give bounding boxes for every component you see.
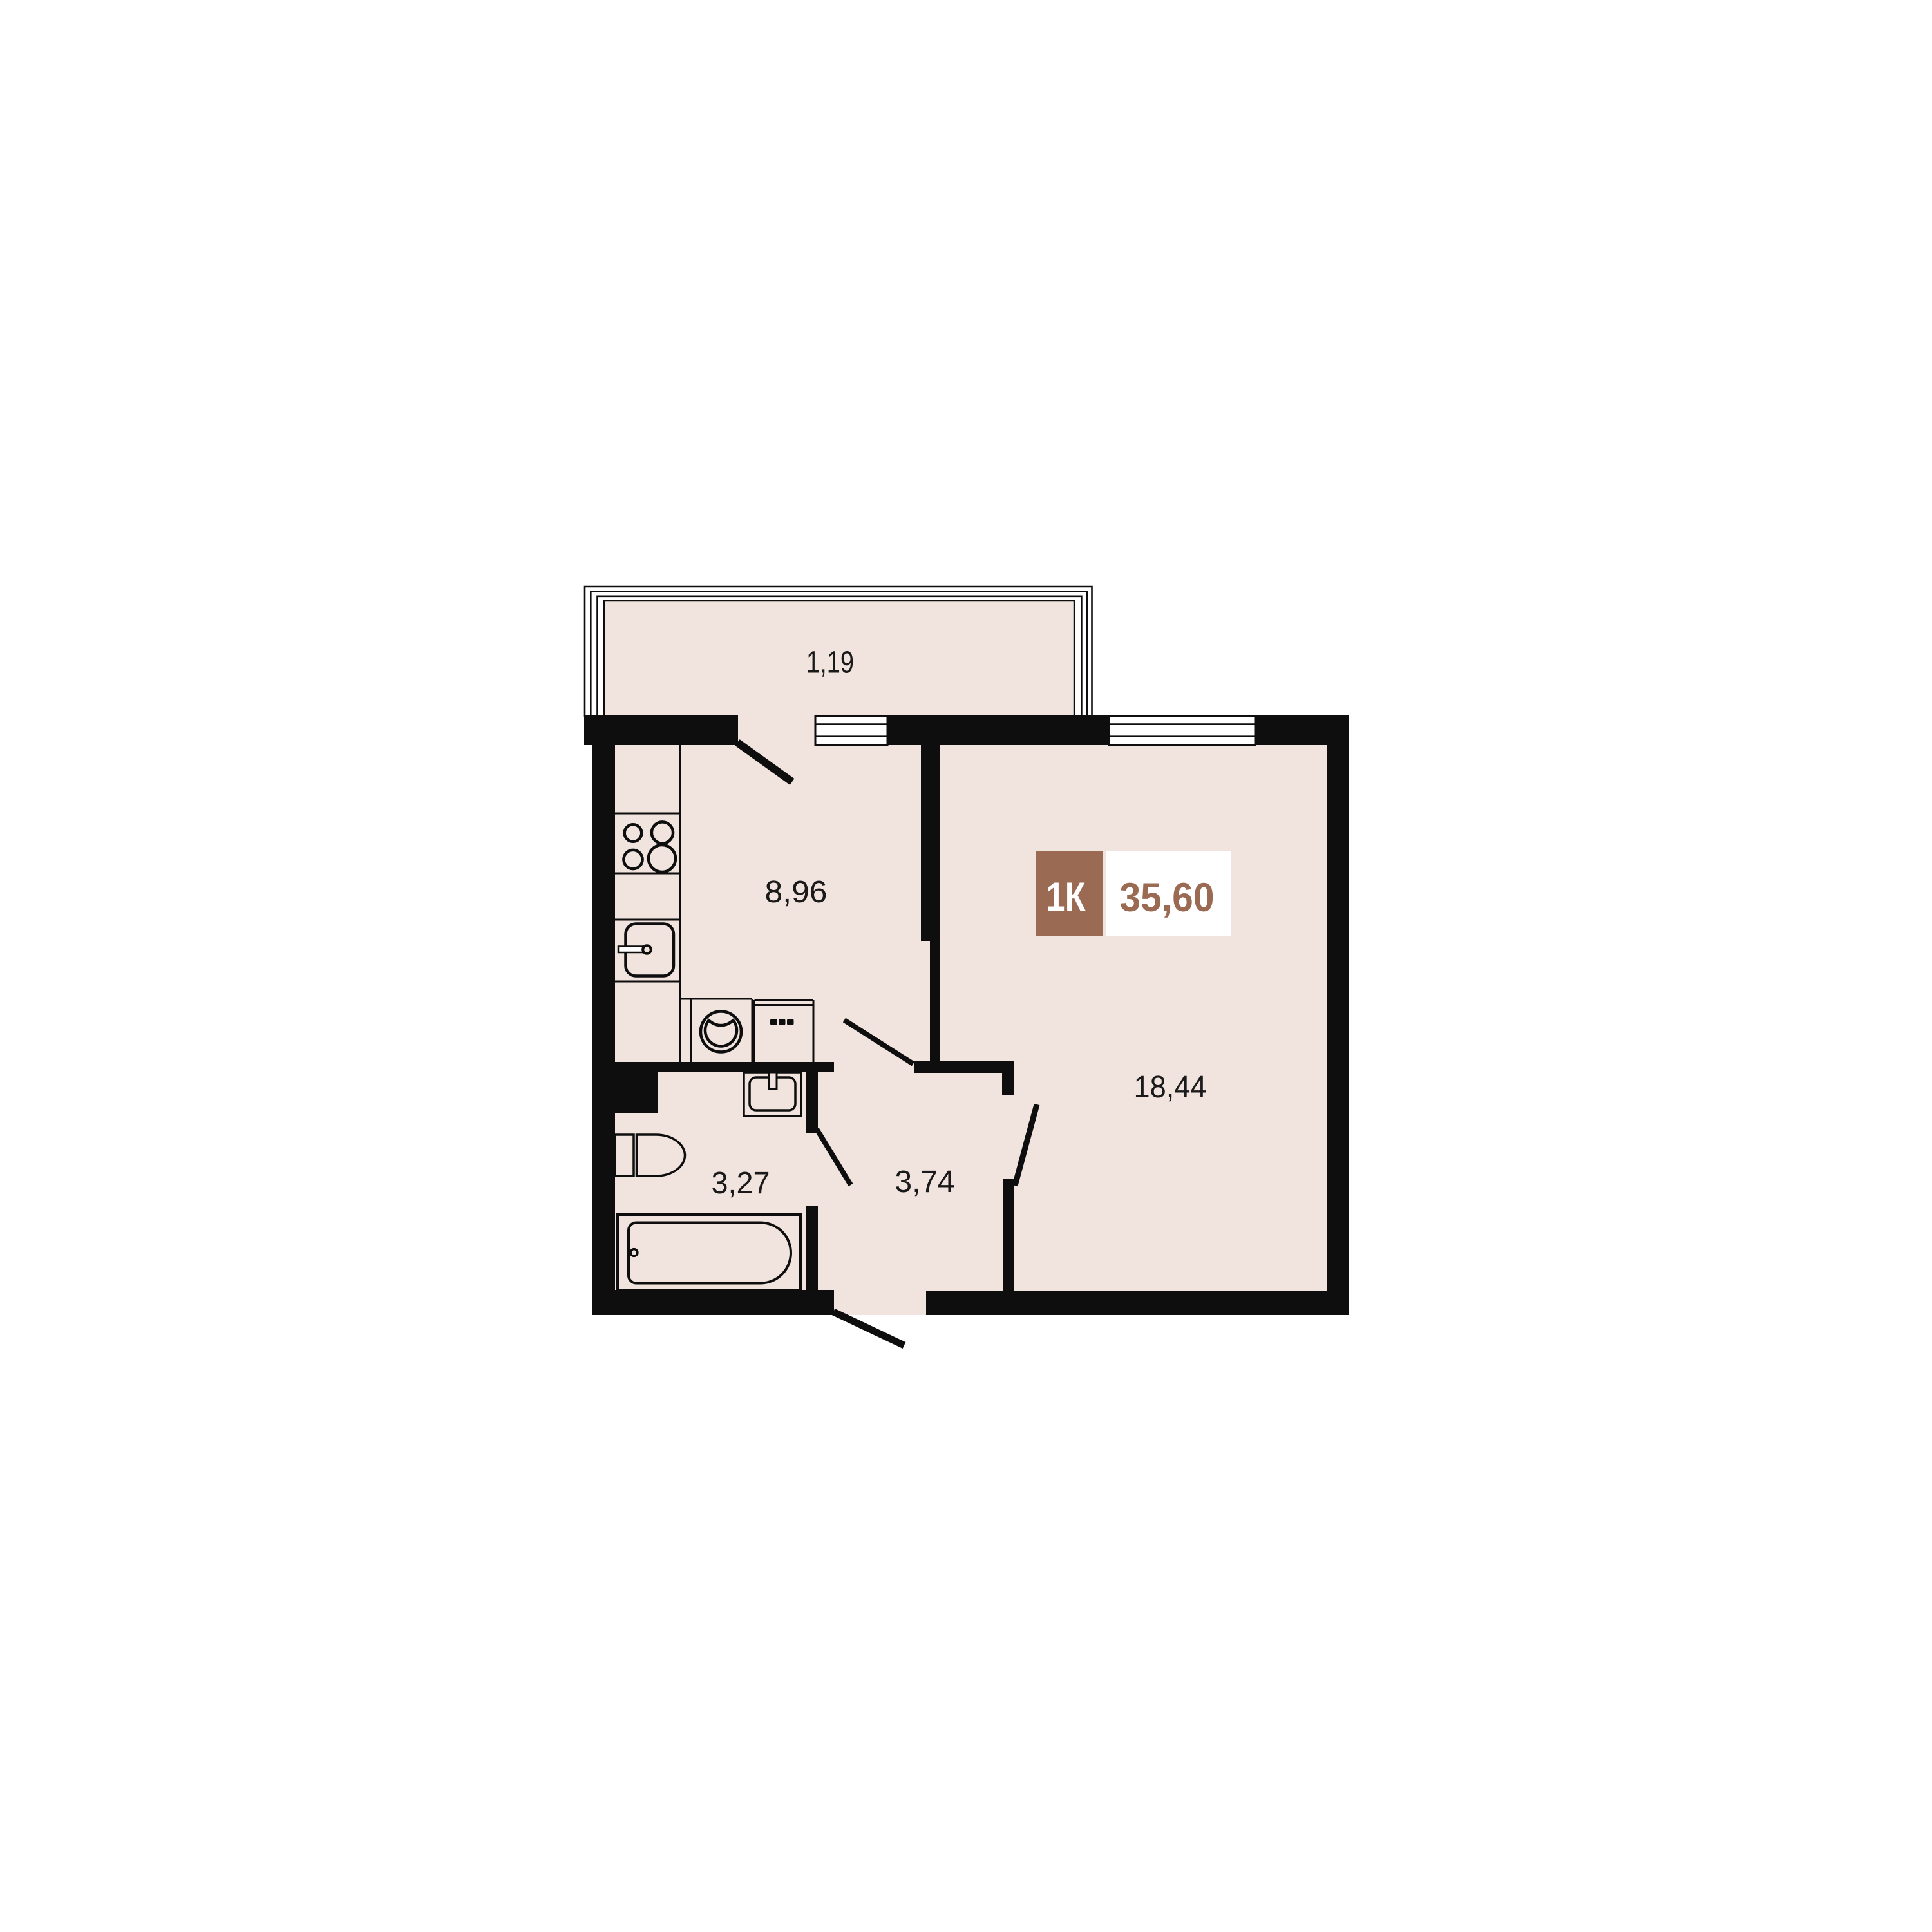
svg-text:1К: 1К	[1046, 875, 1086, 920]
svg-text:3,74: 3,74	[895, 1165, 955, 1199]
svg-text:8,96: 8,96	[765, 875, 828, 909]
svg-text:3,27: 3,27	[712, 1166, 770, 1200]
svg-text:1,19: 1,19	[806, 646, 854, 680]
svg-text:18,44: 18,44	[1134, 1070, 1207, 1104]
svg-text:35,60: 35,60	[1120, 875, 1215, 920]
